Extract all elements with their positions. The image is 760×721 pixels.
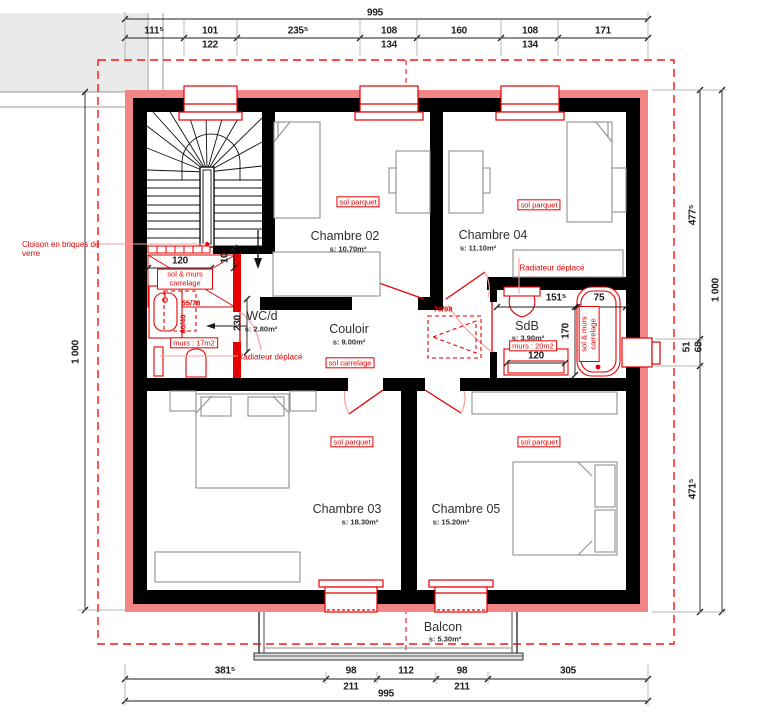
dim-right-s3: 471⁵ [688,479,699,500]
note-radiateur-wc: Radiateur déplacé [238,353,303,362]
room-chambre05-area: s: 15.20m² [433,518,470,527]
dim-top-s4: 108 [381,26,397,37]
room-chambre02-name: Chambre 02 [311,229,380,243]
dim-bottom-s5: 305 [560,666,576,677]
dim-top-s1: 111⁵ [144,26,163,37]
finish-chambre05: sol parquet [517,436,560,447]
dim-bottom-s4b: 211 [454,682,470,693]
dim-skylight: 78/98 [434,305,453,314]
dim-bottom-s3: 112 [398,666,414,677]
room-chambre03-name: Chambre 03 [313,502,382,516]
plan-drawing [0,0,760,721]
dim-right-s2b: 68 [694,342,705,353]
finish-couloir: sol carrelage [326,357,375,368]
room-sdb-name: SdB [515,319,539,333]
walls-note-wc: murs : 17m2 [170,337,218,348]
glass-brick-wall [97,242,210,253]
note-radiateur-ch04: Radiateur déplacé [520,264,585,273]
finish-bath: sol & murs carrelage [579,306,600,362]
dim-sdb-height: 170 [561,323,572,339]
dim-right-s1: 477⁵ [688,205,699,226]
note-cloison: Cloison en briques de verre [22,240,102,258]
room-balcon-name: Balcon [424,620,462,634]
dim-bottom-s2b: 211 [343,682,359,693]
dim-top-s4b: 134 [381,40,397,51]
room-couloir-name: Couloir [329,322,369,336]
dim-right-s2: 51 [682,342,693,353]
dim-sdb-width: 151⁵ [546,293,567,304]
room-chambre03-area: s: 18.30m² [342,518,379,527]
finish-chambre03: sol parquet [330,436,373,447]
floor-plan: 995 111⁵ 101 122 235⁵ 108 134 160 108 13… [0,0,760,721]
room-chambre04-name: Chambre 04 [459,228,528,242]
dim-bottom-s2: 98 [346,666,357,677]
dim-left-total: 1 000 [71,340,82,364]
balcony [254,612,523,660]
dim-top-total: 995 [367,8,383,19]
room-chambre05-name: Chambre 05 [432,502,501,516]
dim-bottom-total: 995 [378,689,394,700]
dim-top-s2: 101 [202,26,218,37]
dim-top-s3: 235⁵ [288,26,309,37]
dim-wall-10: 10 [220,253,231,264]
dim-top-s6: 108 [522,26,538,37]
dim-vanity: 120 [528,351,544,362]
dim-bottom-s1: 381⁵ [215,666,236,677]
room-wc-name: WC/d [246,309,277,323]
room-couloir-area: s: 9.00m² [333,338,366,347]
dim-wc-230: 230 [233,315,244,331]
dim-bottom-s4: 98 [457,666,468,677]
dim-closet: 120 [172,256,188,267]
finish-chambre02: sol parquet [336,196,379,207]
dim-top-s5: 160 [451,26,467,37]
dim-top-s2b: 122 [202,40,218,51]
dim-sink2: 60/40 [179,315,188,334]
dim-top-s7: 171 [595,26,611,37]
room-wc-area: s: 2.80m² [245,325,278,334]
room-chambre02-area: s: 10.70m² [330,245,367,254]
walls-note-sdb: murs : 20m2 [509,340,557,351]
room-chambre04-area: s: 11.10m² [460,244,496,253]
finish-chambre04: sol parquet [517,199,560,210]
dim-top-s6b: 134 [522,40,538,51]
dim-tub-width: 75 [594,293,605,304]
room-balcon-area: s: 5.30m² [429,635,462,644]
dim-right-total: 1 000 [711,278,722,302]
finish-closet: sol & murs carrelage [157,269,213,290]
dim-sink: 55/78 [182,299,201,308]
